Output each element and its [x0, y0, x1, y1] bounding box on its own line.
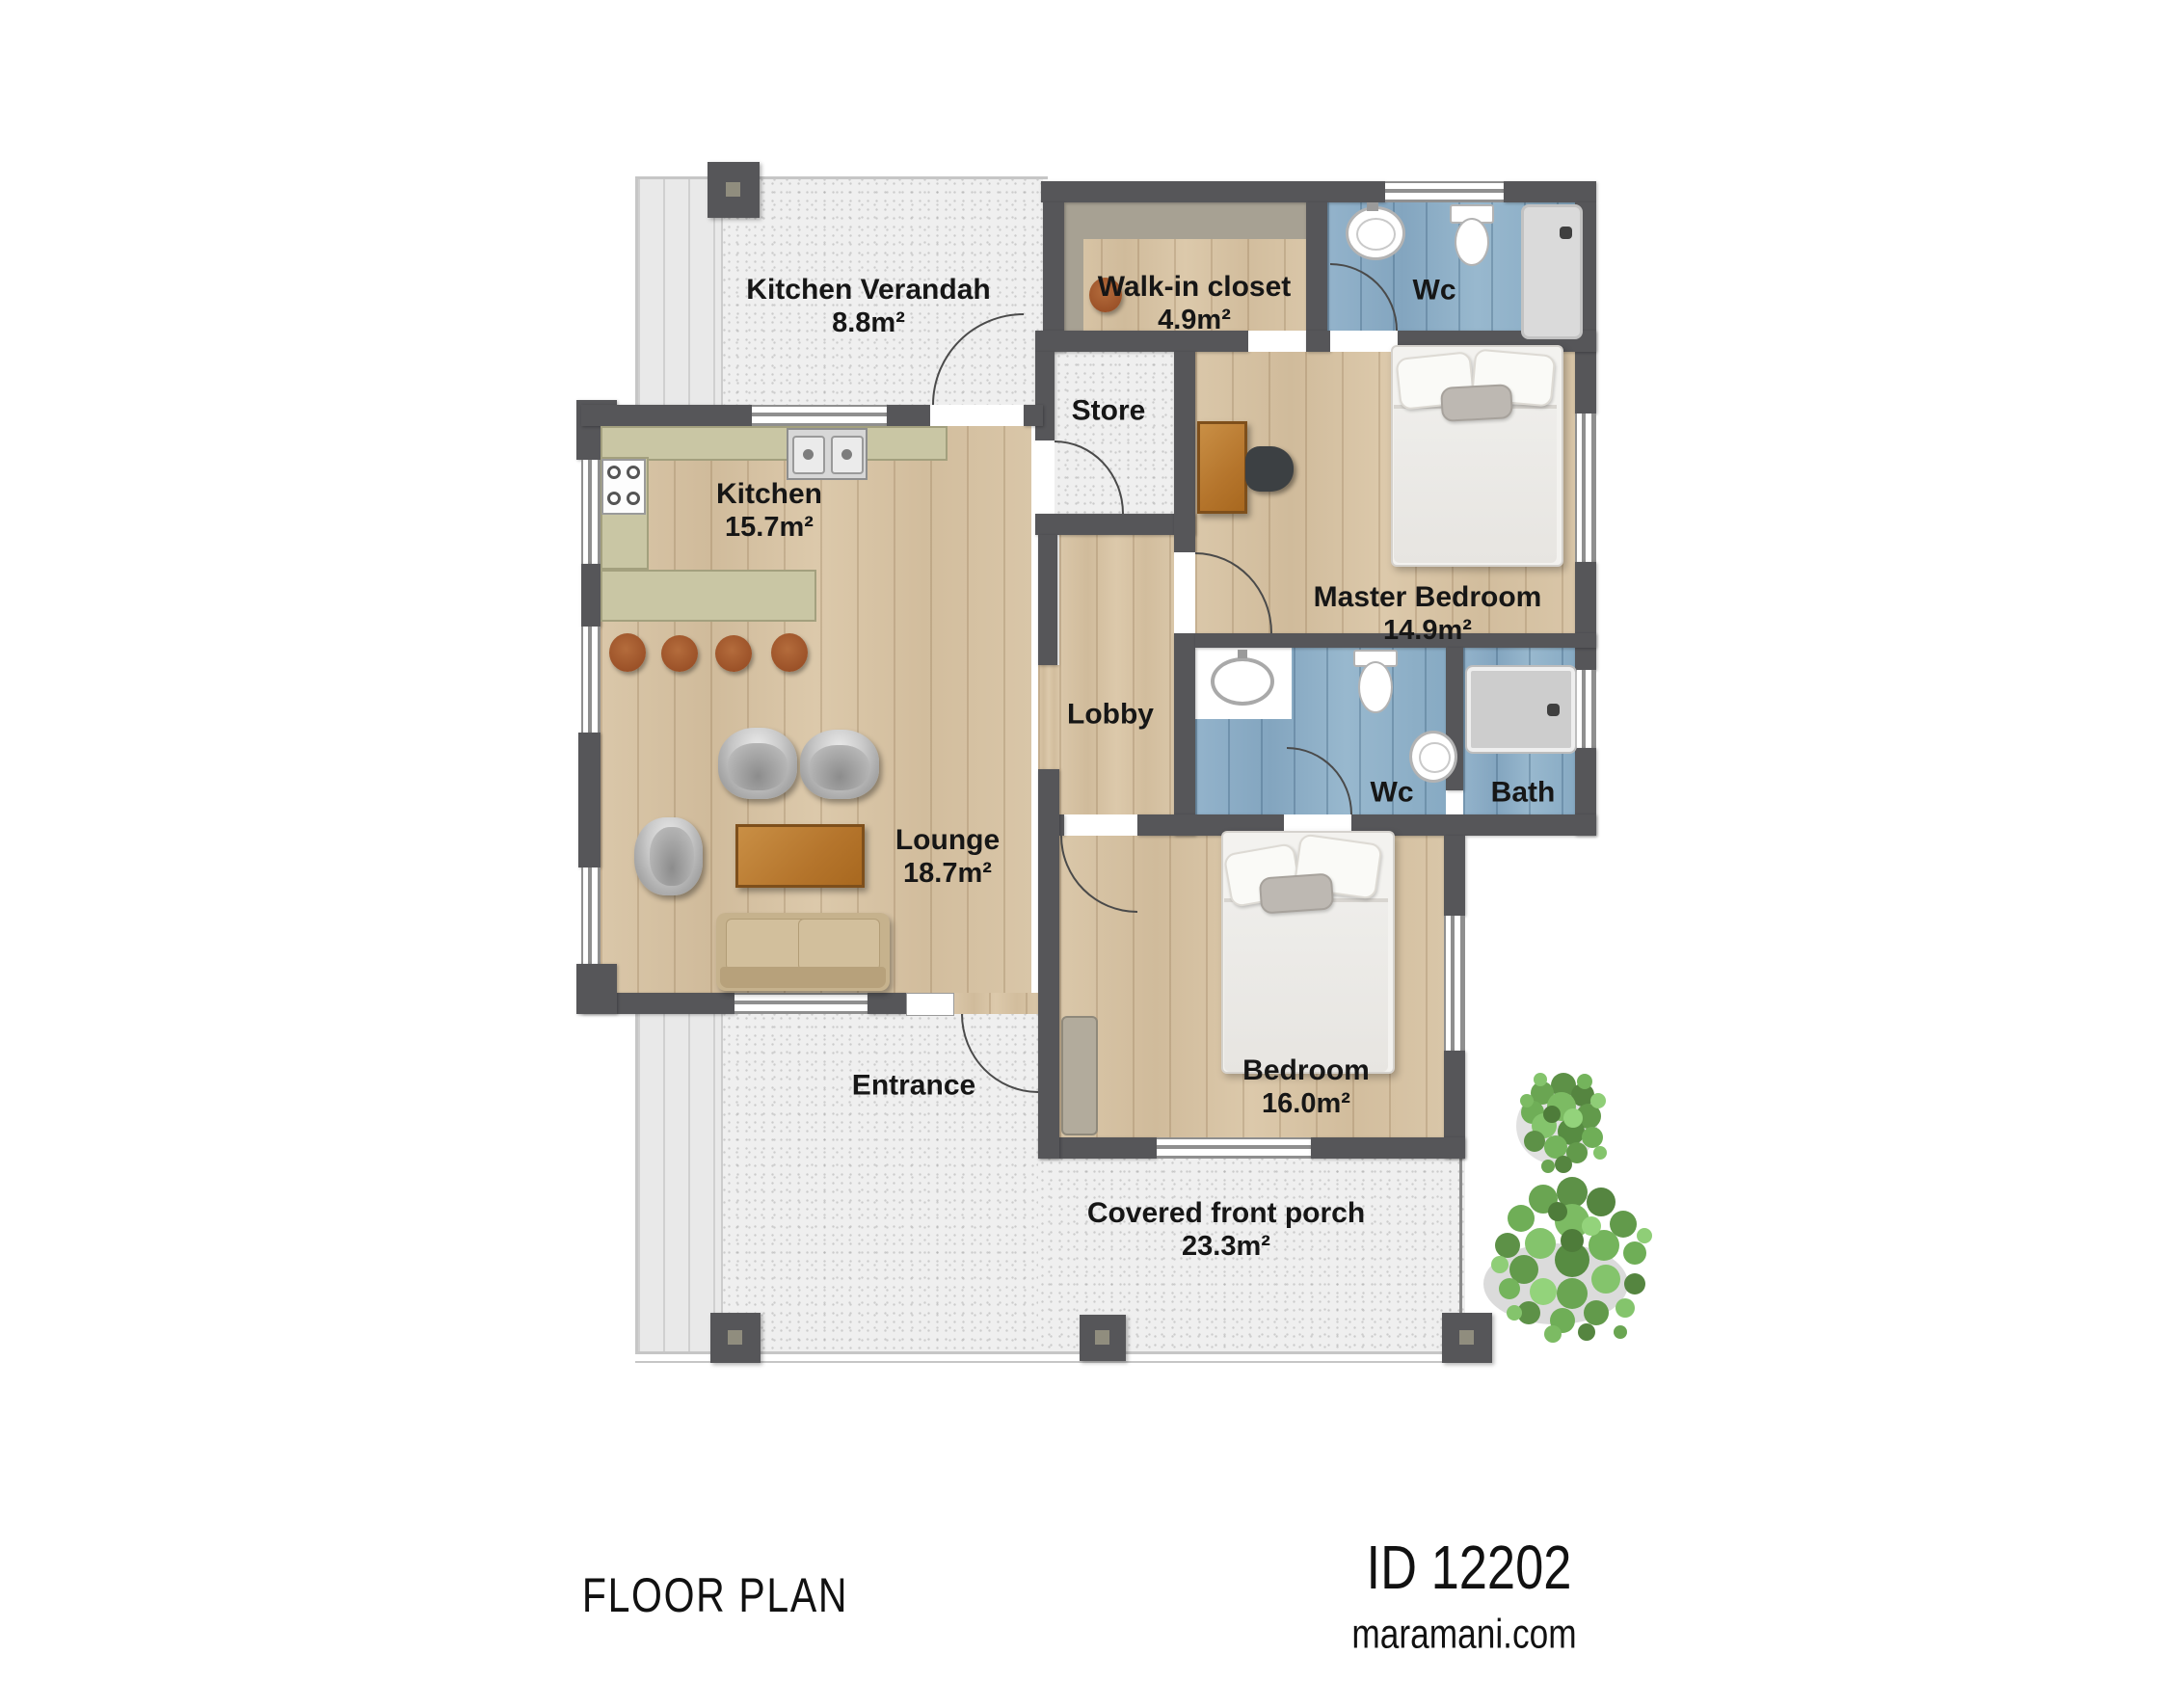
shrub-small [1511, 1066, 1616, 1174]
wall [1024, 405, 1043, 426]
kitchen-island [601, 570, 816, 622]
wall [576, 964, 617, 1014]
hall-connector-floor [1038, 665, 1059, 769]
window [1575, 670, 1596, 748]
room-label-lounge: Lounge18.7m² [895, 824, 1000, 890]
porch-pillar [710, 1313, 761, 1363]
door-opening [930, 405, 1024, 426]
toilet-bowl [1358, 661, 1393, 713]
wall [868, 993, 906, 1014]
desk-chair [1245, 446, 1294, 492]
room-label-master-bedroom: Master Bedroom14.9m² [1314, 581, 1542, 647]
room-label-lobby: Lobby [1067, 699, 1154, 733]
desk [1197, 421, 1247, 514]
shower-tray [1467, 667, 1575, 752]
website-url: maramani.com [1327, 1612, 1601, 1659]
kitchen-sink [787, 428, 868, 480]
wall [1306, 202, 1327, 331]
door-opening [1174, 552, 1195, 633]
window [581, 867, 601, 969]
wall [581, 405, 752, 426]
wall [1043, 202, 1064, 352]
window [752, 405, 887, 426]
wall [1035, 352, 1055, 440]
closet-wardrobe-band [1064, 202, 1083, 331]
wall [1035, 514, 1195, 535]
room-label-entrance: Entrance [852, 1070, 975, 1104]
door-opening [1035, 440, 1055, 514]
wash-basin [1409, 731, 1457, 783]
wall [1575, 562, 1596, 670]
porch-pillar [708, 162, 760, 218]
window [734, 993, 868, 1014]
wash-basin [1346, 206, 1405, 260]
window [1575, 414, 1596, 562]
wall [581, 564, 601, 627]
wall [1038, 535, 1057, 665]
room-label-wc-mid: Wc [1371, 777, 1414, 811]
door-opening [1330, 331, 1398, 352]
bar-stool [609, 633, 646, 672]
wall [1174, 352, 1195, 552]
closet-wardrobe-band [1064, 202, 1306, 239]
plan-id: ID 12202 [1344, 1532, 1594, 1603]
wall [887, 405, 930, 426]
armchair [634, 817, 703, 895]
room-label-walk-in-closet: Walk-in closet4.9m² [1098, 271, 1292, 336]
porch-deck-strip [638, 1014, 723, 1353]
stove [601, 459, 646, 515]
wall [578, 733, 601, 867]
wall [1041, 181, 1385, 202]
porch-pillar [1080, 1315, 1126, 1361]
window [1157, 1137, 1311, 1159]
wall [1174, 633, 1195, 836]
wall [1444, 836, 1465, 916]
porch-edge-line [635, 1014, 638, 1353]
floor-plan-sheet: Kitchen Verandah8.8m² Walk-in closet4.9m… [0, 0, 2163, 1708]
lobby-floor [1059, 535, 1174, 814]
wardrobe [1061, 1016, 1098, 1135]
kitchen-counter-top [601, 426, 948, 461]
room-label-bedroom: Bedroom16.0m² [1242, 1054, 1370, 1120]
tap [1238, 650, 1247, 658]
toilet-bowl [1455, 218, 1489, 266]
wash-basin [1211, 657, 1274, 706]
room-label-wc-top: Wc [1413, 275, 1456, 308]
sofa [716, 913, 890, 991]
coffee-table [735, 824, 865, 888]
entrance-doorway-floor [952, 993, 1038, 1014]
armchair [800, 730, 879, 799]
shower [1521, 204, 1583, 339]
wall [1504, 181, 1596, 202]
wall [1059, 814, 1064, 836]
bar-stool [715, 635, 752, 672]
window [581, 627, 601, 733]
bar-stool [661, 635, 698, 672]
room-label-bath: Bath [1491, 777, 1556, 811]
door-leaf [906, 993, 954, 1016]
room-label-store: Store [1072, 395, 1146, 429]
wall [1038, 769, 1059, 1159]
sheet-title: FLOOR PLAN [553, 1567, 878, 1623]
room-label-kitchen-verandah: Kitchen Verandah8.8m² [746, 274, 990, 339]
room-label-covered-front-porch: Covered front porch23.3m² [1087, 1197, 1365, 1263]
room-label-kitchen: Kitchen15.7m² [716, 478, 822, 544]
window [1385, 181, 1504, 202]
tap [1367, 202, 1378, 211]
master-bed [1391, 345, 1563, 567]
wall [1306, 331, 1330, 352]
armchair [718, 728, 797, 799]
shrub-large [1481, 1168, 1664, 1351]
window [1444, 916, 1465, 1051]
bar-stool [771, 633, 808, 672]
wall [1311, 1137, 1465, 1159]
bedroom-bed [1221, 831, 1395, 1074]
window [581, 460, 601, 564]
